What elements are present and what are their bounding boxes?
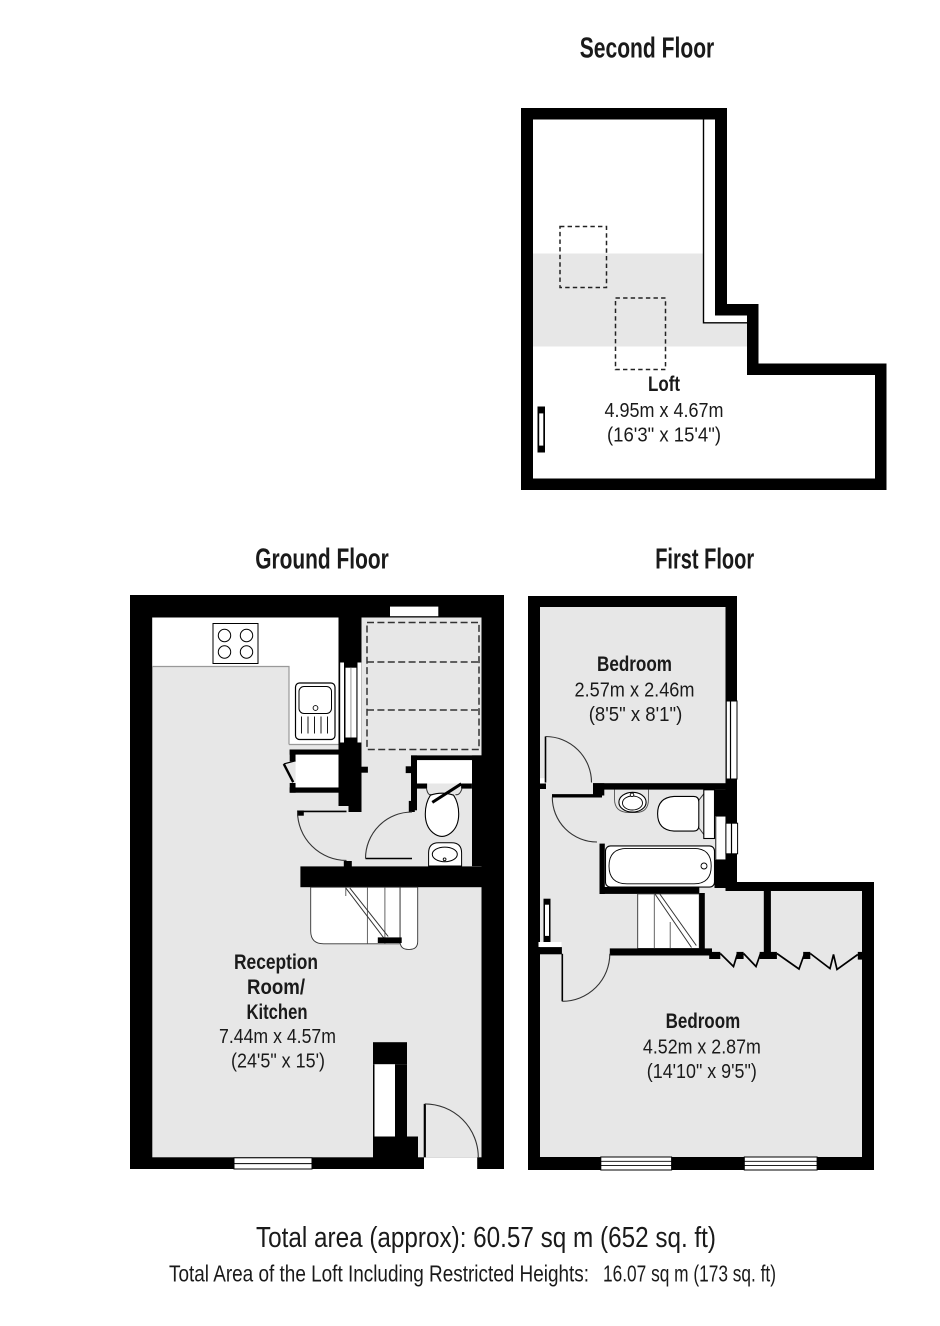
svg-text:Bedroom: Bedroom [666, 1010, 741, 1033]
svg-text:4.52m x 2.87m: 4.52m x 2.87m [643, 1037, 761, 1059]
svg-text:(14'10" x 9'5"): (14'10" x 9'5") [647, 1061, 757, 1083]
svg-text:Second Floor: Second Floor [580, 33, 715, 65]
svg-text:Kitchen: Kitchen [247, 1001, 308, 1024]
svg-text:(16'3" x 15'4"): (16'3" x 15'4") [607, 425, 721, 447]
svg-text:Total area (approx): 60.57 sq: Total area (approx): 60.57 sq m (652 sq.… [256, 1222, 716, 1254]
svg-text:Loft: Loft [648, 373, 680, 396]
svg-text:First Floor: First Floor [655, 544, 754, 576]
svg-text:Room/: Room/ [247, 976, 305, 999]
svg-text:2.57m x 2.46m: 2.57m x 2.46m [575, 680, 695, 702]
svg-text:Ground Floor: Ground Floor [255, 544, 389, 576]
svg-text:4.95m x 4.67m: 4.95m x 4.67m [605, 400, 724, 422]
svg-text:(24'5" x 15'): (24'5" x 15') [231, 1051, 325, 1073]
svg-text:(8'5" x 8'1"): (8'5" x 8'1") [589, 704, 683, 726]
svg-text:7.44m x 4.57m: 7.44m x 4.57m [219, 1026, 336, 1048]
svg-text:16.07 sq m (173 sq. ft): 16.07 sq m (173 sq. ft) [603, 1261, 776, 1287]
svg-text:Total Area of the Loft Includi: Total Area of the Loft Including Restric… [169, 1261, 589, 1287]
svg-text:Bedroom: Bedroom [597, 653, 672, 676]
svg-text:Reception: Reception [234, 951, 318, 974]
